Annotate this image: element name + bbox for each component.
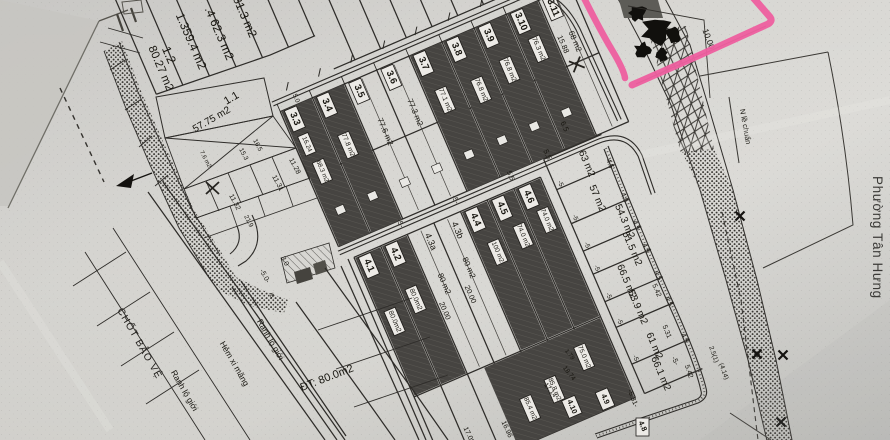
svg-text:Phường Tân Hưng: Phường Tân Hưng xyxy=(870,176,885,299)
